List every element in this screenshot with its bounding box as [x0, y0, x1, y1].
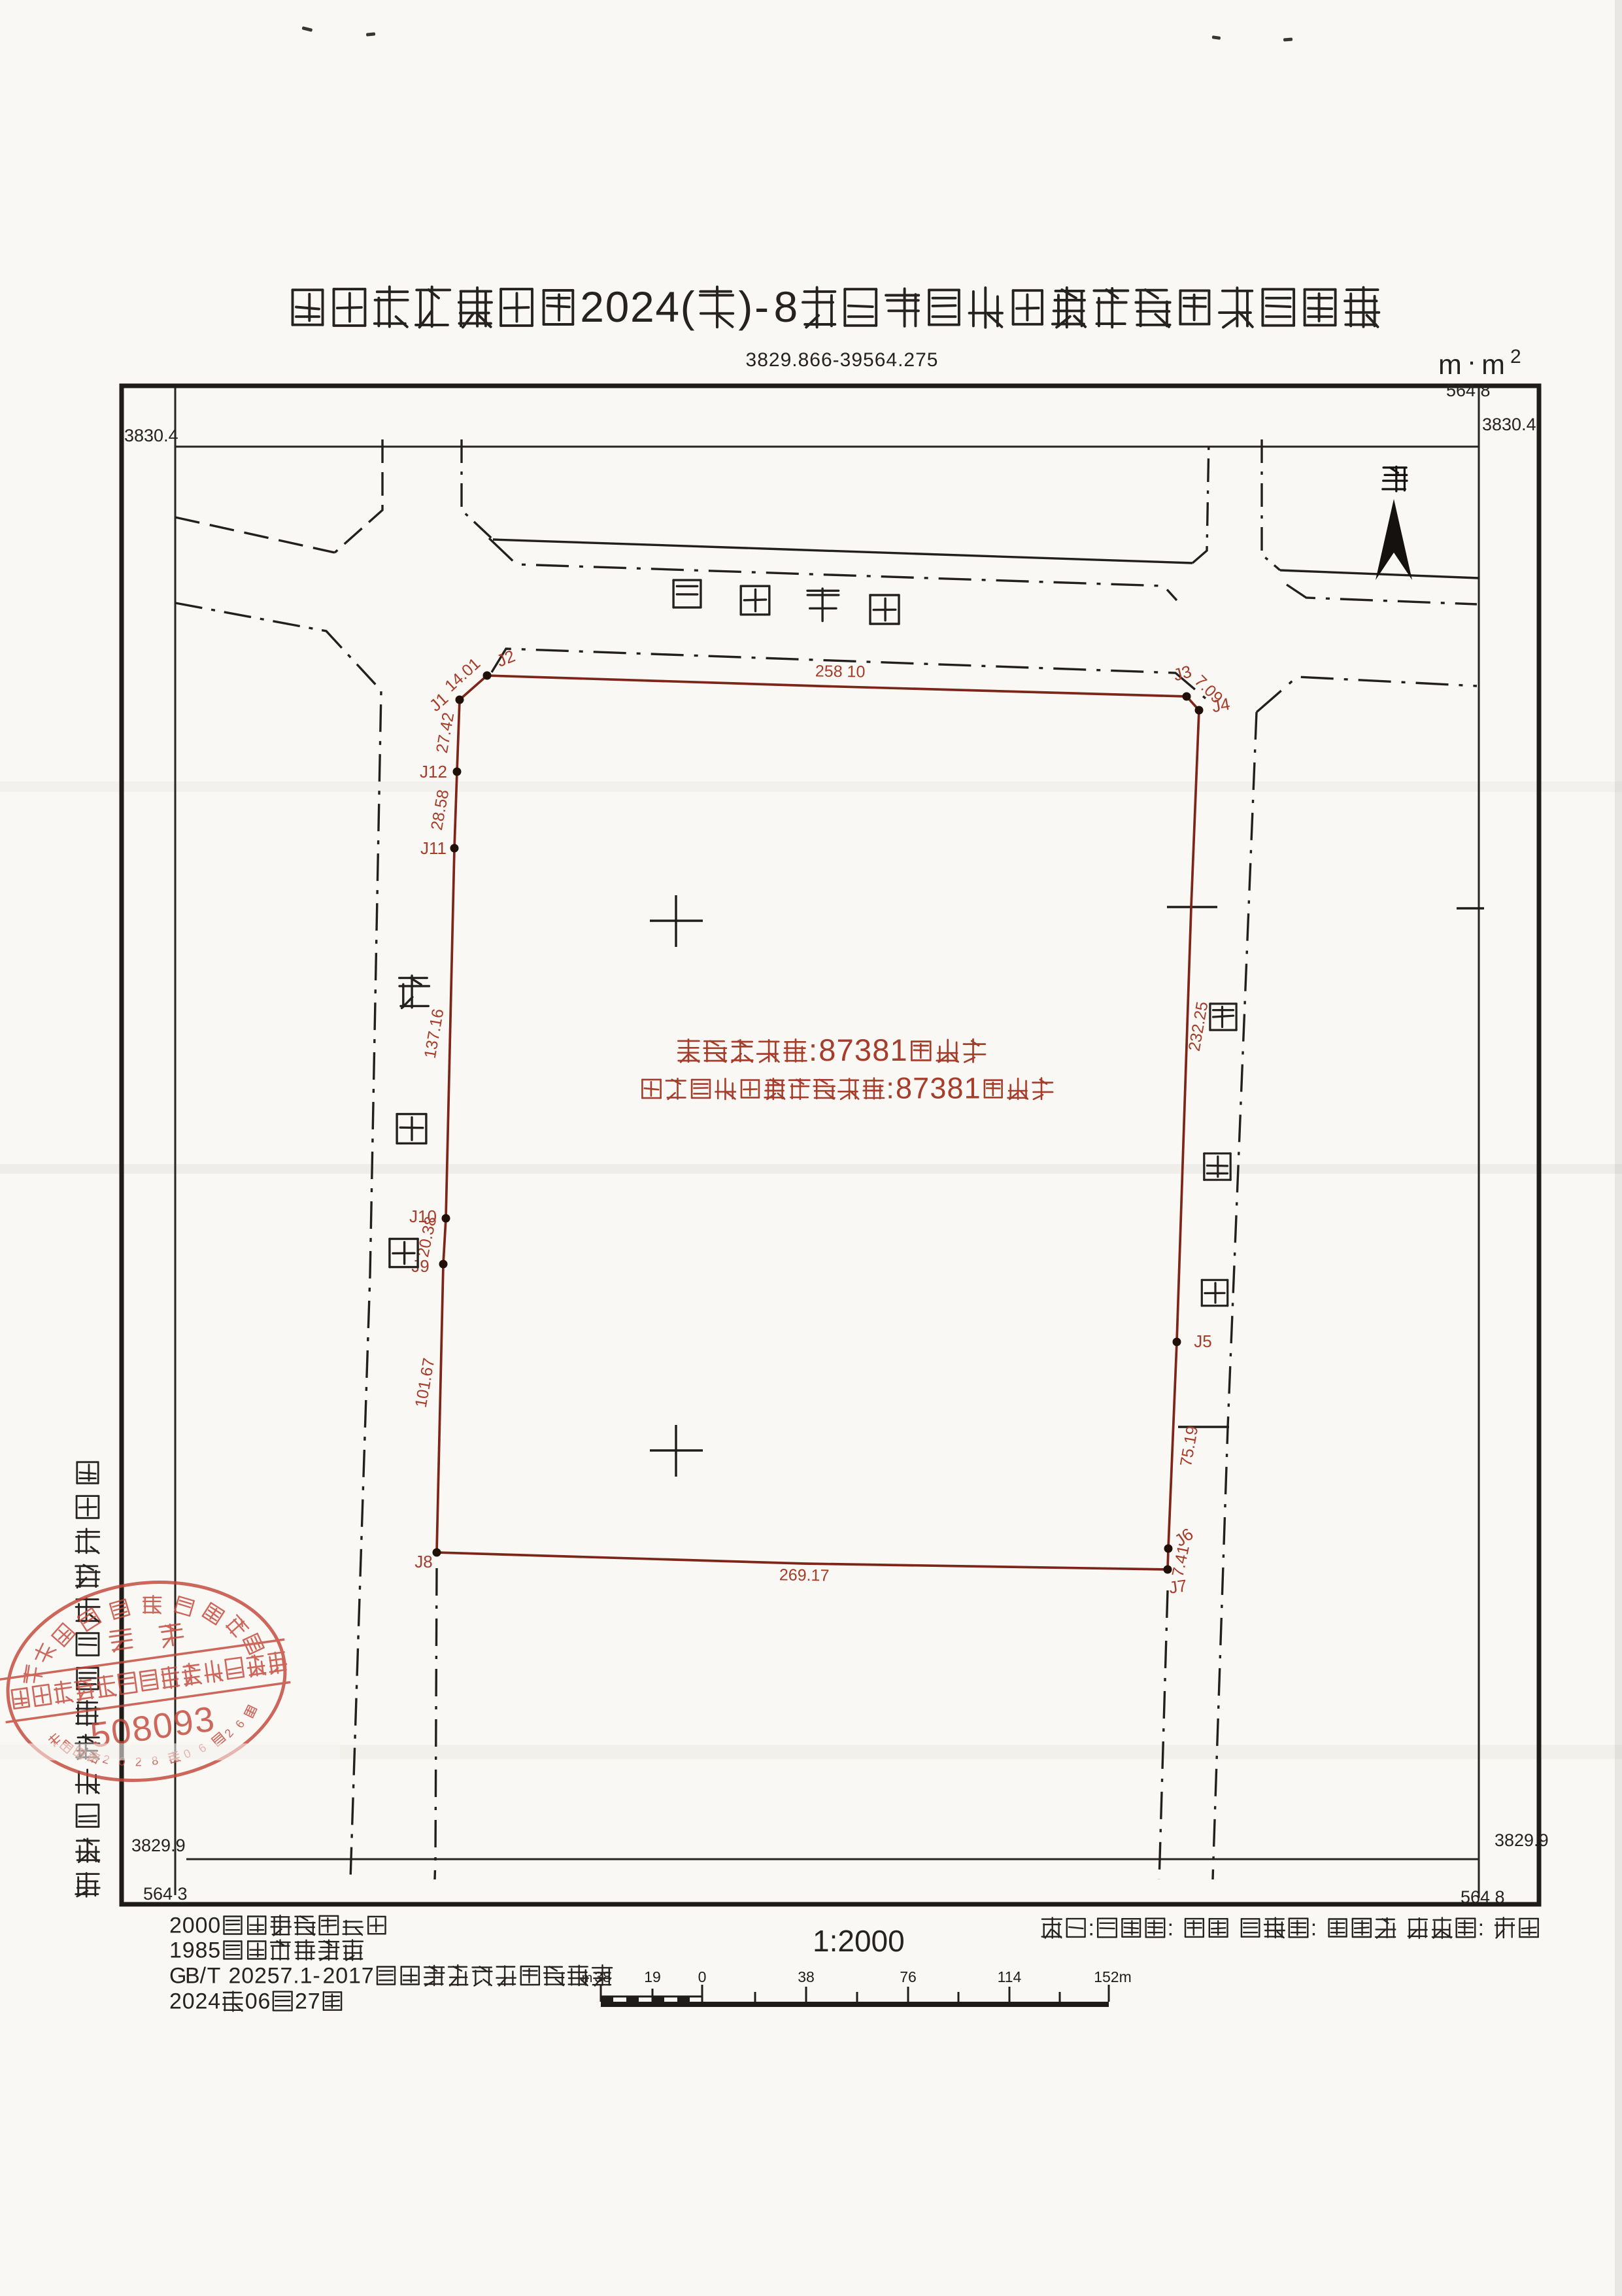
svg-text:J11: J11: [420, 838, 447, 858]
svg-text:T: T: [207, 1964, 221, 1989]
svg-text:7: 7: [837, 1033, 854, 1067]
svg-text:2: 2: [295, 1989, 307, 2014]
svg-text:7: 7: [362, 1964, 374, 1989]
svg-text:38: 38: [798, 1968, 815, 1985]
svg-text:0: 0: [698, 1968, 707, 1985]
svg-text:8: 8: [872, 1033, 889, 1067]
svg-text::: :: [809, 1033, 817, 1067]
svg-text::: :: [1311, 1916, 1317, 1941]
svg-text:G: G: [169, 1964, 186, 1989]
svg-text:8: 8: [195, 1938, 208, 1963]
svg-text:3830.4: 3830.4: [124, 426, 178, 445]
svg-text:0: 0: [245, 1989, 258, 2014]
svg-text:5: 5: [208, 1938, 220, 1963]
svg-text:3829.9: 3829.9: [1495, 1830, 1549, 1850]
svg-text:1: 1: [890, 1033, 907, 1067]
svg-text:3: 3: [930, 1071, 946, 1105]
svg-text:101.67: 101.67: [412, 1357, 439, 1409]
svg-text:-: -: [313, 1964, 320, 1989]
svg-text:): ): [738, 283, 752, 331]
svg-text:J3: J3: [1172, 661, 1194, 685]
svg-text:3: 3: [854, 1033, 871, 1067]
svg-text:J8: J8: [414, 1552, 432, 1571]
svg-text:2: 2: [630, 283, 654, 331]
svg-text:269.17: 269.17: [779, 1566, 830, 1585]
svg-text:7: 7: [308, 1989, 320, 2014]
svg-text:2: 2: [195, 1989, 208, 2014]
svg-text:1: 1: [300, 1964, 313, 1989]
svg-text:6: 6: [233, 1718, 247, 1730]
svg-text:2: 2: [580, 283, 604, 331]
svg-text:0: 0: [195, 1913, 208, 1938]
svg-text::: :: [1168, 1916, 1174, 1941]
svg-text:258 10: 258 10: [815, 662, 866, 681]
svg-text:0: 0: [182, 1913, 195, 1938]
svg-text:3830.4: 3830.4: [1482, 415, 1536, 434]
svg-text:564 3: 564 3: [143, 1884, 188, 1904]
svg-text:J5: J5: [1194, 1331, 1211, 1351]
svg-text:m·m2: m·m2: [1438, 346, 1527, 381]
svg-text:9: 9: [182, 1938, 195, 1963]
svg-text:564 8: 564 8: [1461, 1887, 1505, 1907]
svg-text:7: 7: [280, 1964, 292, 1989]
svg-text:1: 1: [964, 1071, 981, 1105]
svg-text:3829.866-39564.275: 3829.866-39564.275: [746, 349, 939, 371]
svg-text:0: 0: [335, 1964, 348, 1989]
svg-text:(: (: [681, 283, 695, 331]
svg-text:0: 0: [605, 283, 630, 331]
svg-text:152m: 152m: [1094, 1968, 1132, 1985]
svg-text:2: 2: [228, 1964, 241, 1989]
svg-text:0: 0: [208, 1913, 220, 1938]
svg-text:J2: J2: [494, 646, 518, 671]
svg-text:J12: J12: [420, 762, 447, 781]
svg-text:.: .: [293, 1964, 299, 1989]
svg-text:76: 76: [900, 1968, 917, 1985]
svg-text:28.58: 28.58: [428, 788, 452, 831]
svg-text:14.01: 14.01: [441, 655, 484, 696]
svg-text:-: -: [754, 283, 769, 331]
svg-text:2: 2: [169, 1913, 182, 1938]
svg-text:8: 8: [819, 1033, 836, 1067]
svg-text:8: 8: [947, 1071, 963, 1105]
svg-text::: :: [1088, 1916, 1094, 1941]
svg-text::: :: [1478, 1916, 1484, 1941]
svg-text:137.16: 137.16: [421, 1008, 448, 1060]
svg-text:19: 19: [644, 1968, 661, 1985]
svg-text:114: 114: [998, 1968, 1022, 1985]
svg-text:27.42: 27.42: [433, 711, 458, 754]
svg-text:4: 4: [208, 1989, 220, 2014]
svg-text:8: 8: [896, 1071, 912, 1105]
svg-text:75.19: 75.19: [1177, 1424, 1202, 1467]
svg-text:1:2000: 1:2000: [813, 1924, 905, 1958]
svg-text:564 8: 564 8: [1446, 381, 1491, 400]
svg-text:0: 0: [182, 1989, 195, 2014]
svg-text:1: 1: [169, 1938, 182, 1963]
svg-text:2: 2: [254, 1964, 267, 1989]
svg-text:1: 1: [348, 1964, 361, 1989]
svg-text:2: 2: [322, 1964, 335, 1989]
svg-text:/: /: [200, 1964, 207, 1989]
svg-text:4: 4: [655, 283, 679, 331]
svg-text:232.25: 232.25: [1185, 1001, 1212, 1053]
svg-text:J1: J1: [426, 689, 452, 715]
svg-text:0: 0: [241, 1964, 254, 1989]
svg-text:B: B: [185, 1964, 200, 1989]
svg-text:7: 7: [913, 1071, 929, 1105]
svg-text:3829.9: 3829.9: [131, 1836, 186, 1855]
svg-text::: :: [886, 1071, 894, 1105]
svg-text:8: 8: [773, 283, 798, 331]
svg-text:5: 5: [267, 1964, 280, 1989]
svg-text:2: 2: [169, 1989, 182, 2014]
svg-text:6: 6: [258, 1989, 270, 2014]
